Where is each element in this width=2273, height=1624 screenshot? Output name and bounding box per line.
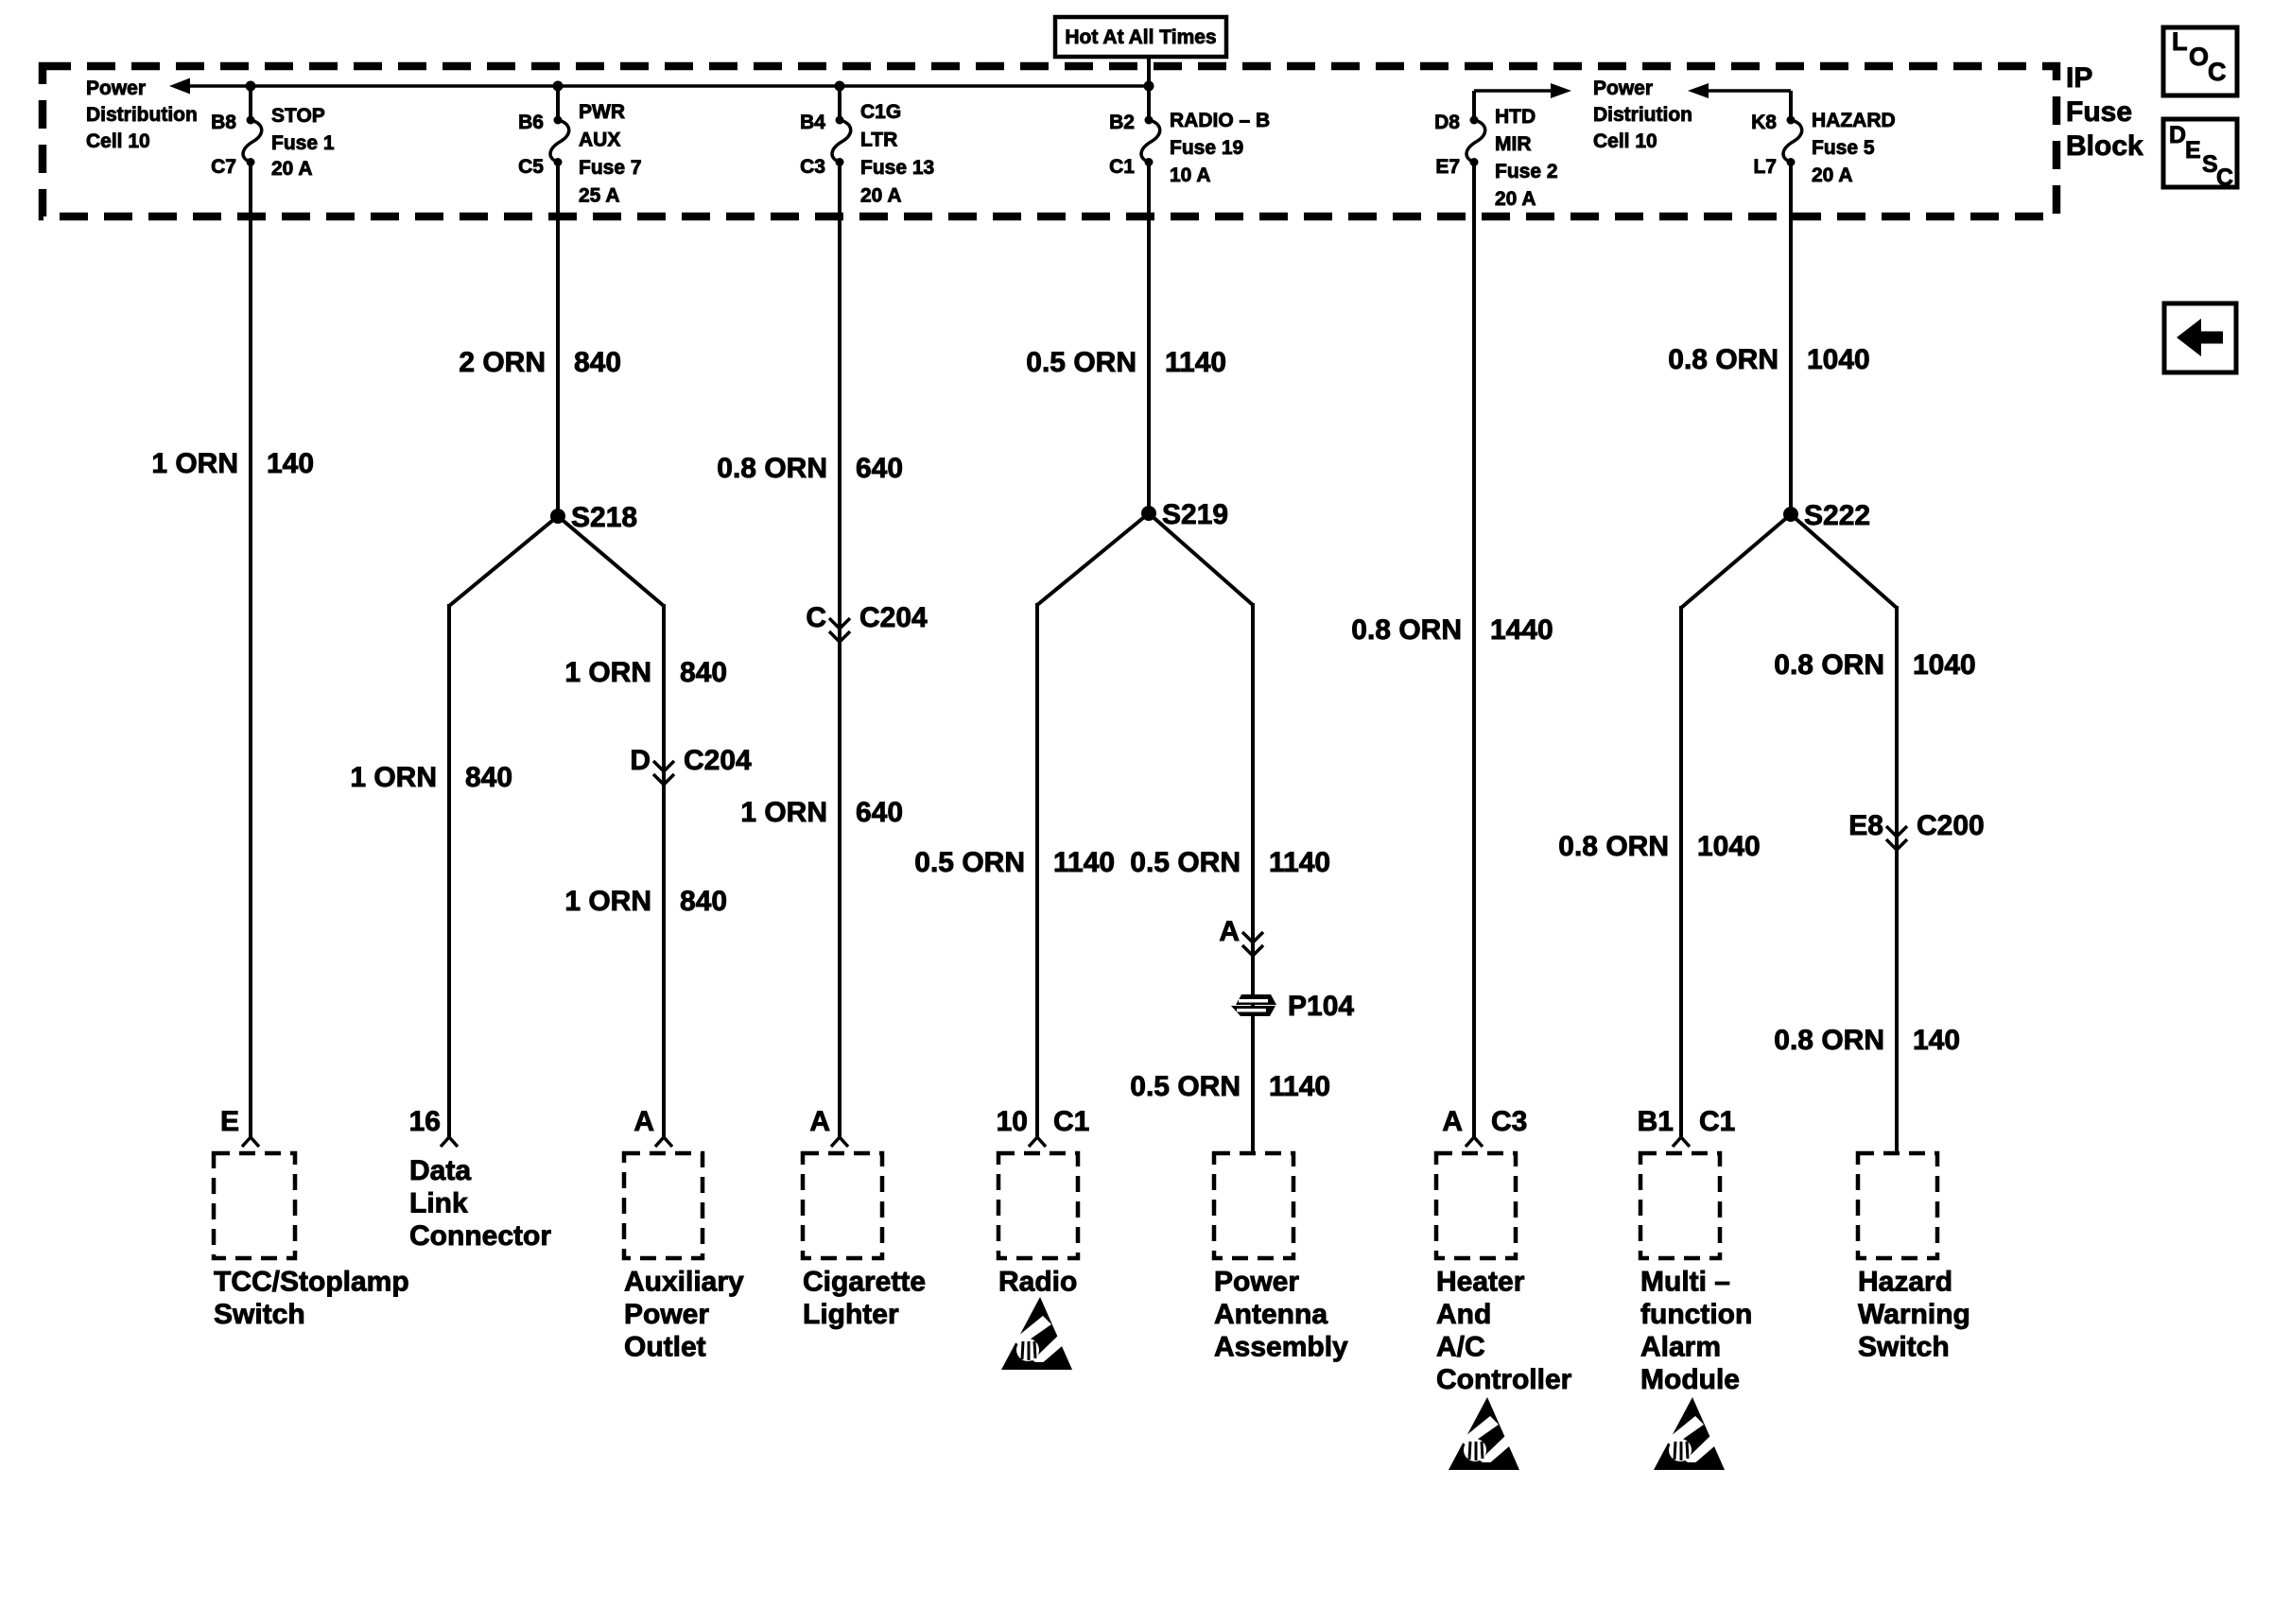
svg-text:C1: C1 [1109,156,1135,178]
svg-text:Hazard: Hazard [1858,1267,1952,1298]
svg-text:0.8 ORN: 0.8 ORN [1351,614,1462,646]
svg-text:Connector: Connector [409,1220,551,1252]
svg-text:B2: B2 [1109,112,1135,133]
svg-text:1 ORN: 1 ORN [564,657,651,688]
svg-text:K8: K8 [1751,112,1777,133]
svg-text:20 A: 20 A [1495,188,1536,210]
svg-text:Radio: Radio [998,1267,1077,1298]
svg-text:STOP: STOP [271,105,325,127]
svg-text:Auxiliary: Auxiliary [624,1267,744,1298]
svg-text:0.8 ORN: 0.8 ORN [717,453,827,484]
svg-text:16: 16 [409,1106,441,1137]
svg-text:840: 840 [680,657,727,688]
svg-text:E: E [220,1106,239,1137]
svg-text:P104: P104 [1288,991,1354,1022]
svg-text:Distriution: Distriution [1593,104,1692,126]
svg-text:C5: C5 [518,156,544,178]
svg-text:PWR: PWR [579,101,625,123]
svg-text:1 ORN: 1 ORN [151,448,238,479]
svg-text:C: C [2208,58,2227,86]
svg-text:Antenna: Antenna [1214,1299,1327,1330]
svg-text:Fuse 7: Fuse 7 [579,157,642,179]
svg-text:0.5 ORN: 0.5 ORN [1130,847,1241,878]
svg-text:E8: E8 [1848,810,1883,841]
svg-text:Power: Power [1593,78,1653,99]
svg-text:1040: 1040 [1697,831,1761,862]
svg-text:Fuse 2: Fuse 2 [1495,161,1558,182]
svg-text:And: And [1436,1299,1491,1330]
svg-text:840: 840 [574,347,621,378]
svg-text:Controller: Controller [1436,1364,1572,1395]
svg-text:640: 640 [856,453,903,484]
svg-text:0.5 ORN: 0.5 ORN [1026,347,1136,378]
svg-text:1040: 1040 [1913,649,1976,681]
svg-text:HAZARD: HAZARD [1812,110,1896,131]
svg-text:Distribution: Distribution [86,104,198,126]
svg-text:1140: 1140 [1269,847,1330,878]
svg-text:Cell 10: Cell 10 [1593,130,1657,152]
svg-text:MIR: MIR [1495,133,1532,155]
svg-text:1440: 1440 [1490,614,1553,646]
svg-text:Switch: Switch [214,1299,305,1330]
svg-text:E: E [2185,137,2201,164]
svg-text:RADIO – B: RADIO – B [1170,110,1270,131]
svg-text:1140: 1140 [1269,1071,1330,1102]
svg-text:0.8 ORN: 0.8 ORN [1558,831,1669,862]
svg-text:S218: S218 [571,502,637,533]
svg-text:20 A: 20 A [271,158,313,180]
svg-text:C204: C204 [859,602,928,633]
svg-text:E7: E7 [1435,156,1460,178]
svg-text:S219: S219 [1162,499,1228,530]
svg-text:B1: B1 [1638,1106,1674,1137]
svg-text:B8: B8 [211,112,236,133]
svg-text:1 ORN: 1 ORN [740,797,827,828]
svg-text:1140: 1140 [1053,847,1115,878]
svg-text:C1: C1 [1053,1106,1089,1137]
svg-text:140: 140 [267,448,314,479]
svg-text:TCC/Stoplamp: TCC/Stoplamp [214,1267,409,1298]
svg-text:Assembly: Assembly [1214,1332,1348,1363]
svg-text:L7: L7 [1753,156,1777,178]
svg-text:0.5 ORN: 0.5 ORN [1130,1071,1241,1102]
svg-text:A: A [633,1106,654,1137]
svg-text:O: O [2189,43,2209,71]
svg-text:10: 10 [997,1106,1028,1137]
svg-text:Lighter: Lighter [803,1299,899,1330]
svg-text:Data: Data [409,1155,471,1186]
svg-text:840: 840 [680,886,727,917]
svg-text:Hot At All Times: Hot At All Times [1065,26,1216,48]
svg-text:Heater: Heater [1436,1267,1525,1298]
svg-text:1040: 1040 [1807,344,1870,375]
svg-text:C7: C7 [211,156,236,178]
svg-text:C: C [2216,164,2233,191]
svg-text:D: D [630,745,651,776]
svg-text:C3: C3 [1491,1106,1527,1137]
svg-text:A: A [1219,916,1240,947]
svg-text:Warning: Warning [1858,1299,1970,1330]
svg-text:Module: Module [1640,1364,1740,1395]
svg-text:Fuse 1: Fuse 1 [271,132,335,154]
svg-text:Link: Link [409,1188,468,1219]
svg-text:C200: C200 [1917,810,1985,841]
svg-text:B4: B4 [800,112,825,133]
svg-text:2 ORN: 2 ORN [459,347,546,378]
svg-text:AUX: AUX [579,130,620,151]
svg-text:C: C [806,602,826,633]
svg-text:0.8 ORN: 0.8 ORN [1774,1025,1884,1056]
svg-text:L: L [2172,27,2188,56]
svg-text:C204: C204 [684,745,752,776]
svg-text:Power: Power [624,1299,709,1330]
svg-text:20 A: 20 A [1812,164,1853,186]
svg-text:10 A: 10 A [1170,164,1211,186]
svg-text:D: D [2169,122,2186,148]
svg-text:Fuse 13: Fuse 13 [860,157,934,179]
svg-text:Power: Power [86,78,146,99]
svg-text:B6: B6 [518,112,544,133]
svg-text:Cigarette: Cigarette [803,1267,926,1298]
svg-text:1 ORN: 1 ORN [564,886,651,917]
svg-text:Block: Block [2066,130,2143,162]
svg-text:640: 640 [856,797,903,828]
svg-text:Cell 10: Cell 10 [86,130,150,152]
svg-text:function: function [1640,1299,1752,1330]
svg-text:IP: IP [2066,62,2092,94]
svg-text:C1G: C1G [860,101,901,123]
svg-text:LTR: LTR [860,130,897,151]
svg-text:C3: C3 [800,156,825,178]
svg-text:Fuse: Fuse [2066,96,2132,128]
svg-text:HTD: HTD [1495,106,1536,128]
svg-text:20 A: 20 A [860,185,902,207]
svg-text:A/C: A/C [1436,1332,1485,1363]
svg-text:A: A [1442,1106,1463,1137]
svg-text:Power: Power [1214,1267,1299,1298]
svg-text:Fuse 19: Fuse 19 [1170,137,1243,159]
svg-text:Fuse 5: Fuse 5 [1812,137,1875,159]
svg-text:1140: 1140 [1165,347,1226,378]
svg-text:0.8 ORN: 0.8 ORN [1668,344,1778,375]
svg-text:D8: D8 [1434,112,1460,133]
svg-text:C1: C1 [1699,1106,1735,1137]
svg-text:25 A: 25 A [579,185,620,207]
svg-text:1 ORN: 1 ORN [350,762,437,793]
svg-text:S222: S222 [1804,500,1870,531]
svg-text:Outlet: Outlet [624,1332,706,1363]
svg-text:Switch: Switch [1858,1332,1950,1363]
svg-text:840: 840 [465,762,512,793]
svg-text:140: 140 [1913,1025,1960,1056]
svg-text:Multi –: Multi – [1640,1267,1730,1298]
svg-text:A: A [809,1106,830,1137]
svg-text:Alarm: Alarm [1640,1332,1721,1363]
svg-text:0.5 ORN: 0.5 ORN [914,847,1025,878]
svg-text:0.8 ORN: 0.8 ORN [1774,649,1884,681]
